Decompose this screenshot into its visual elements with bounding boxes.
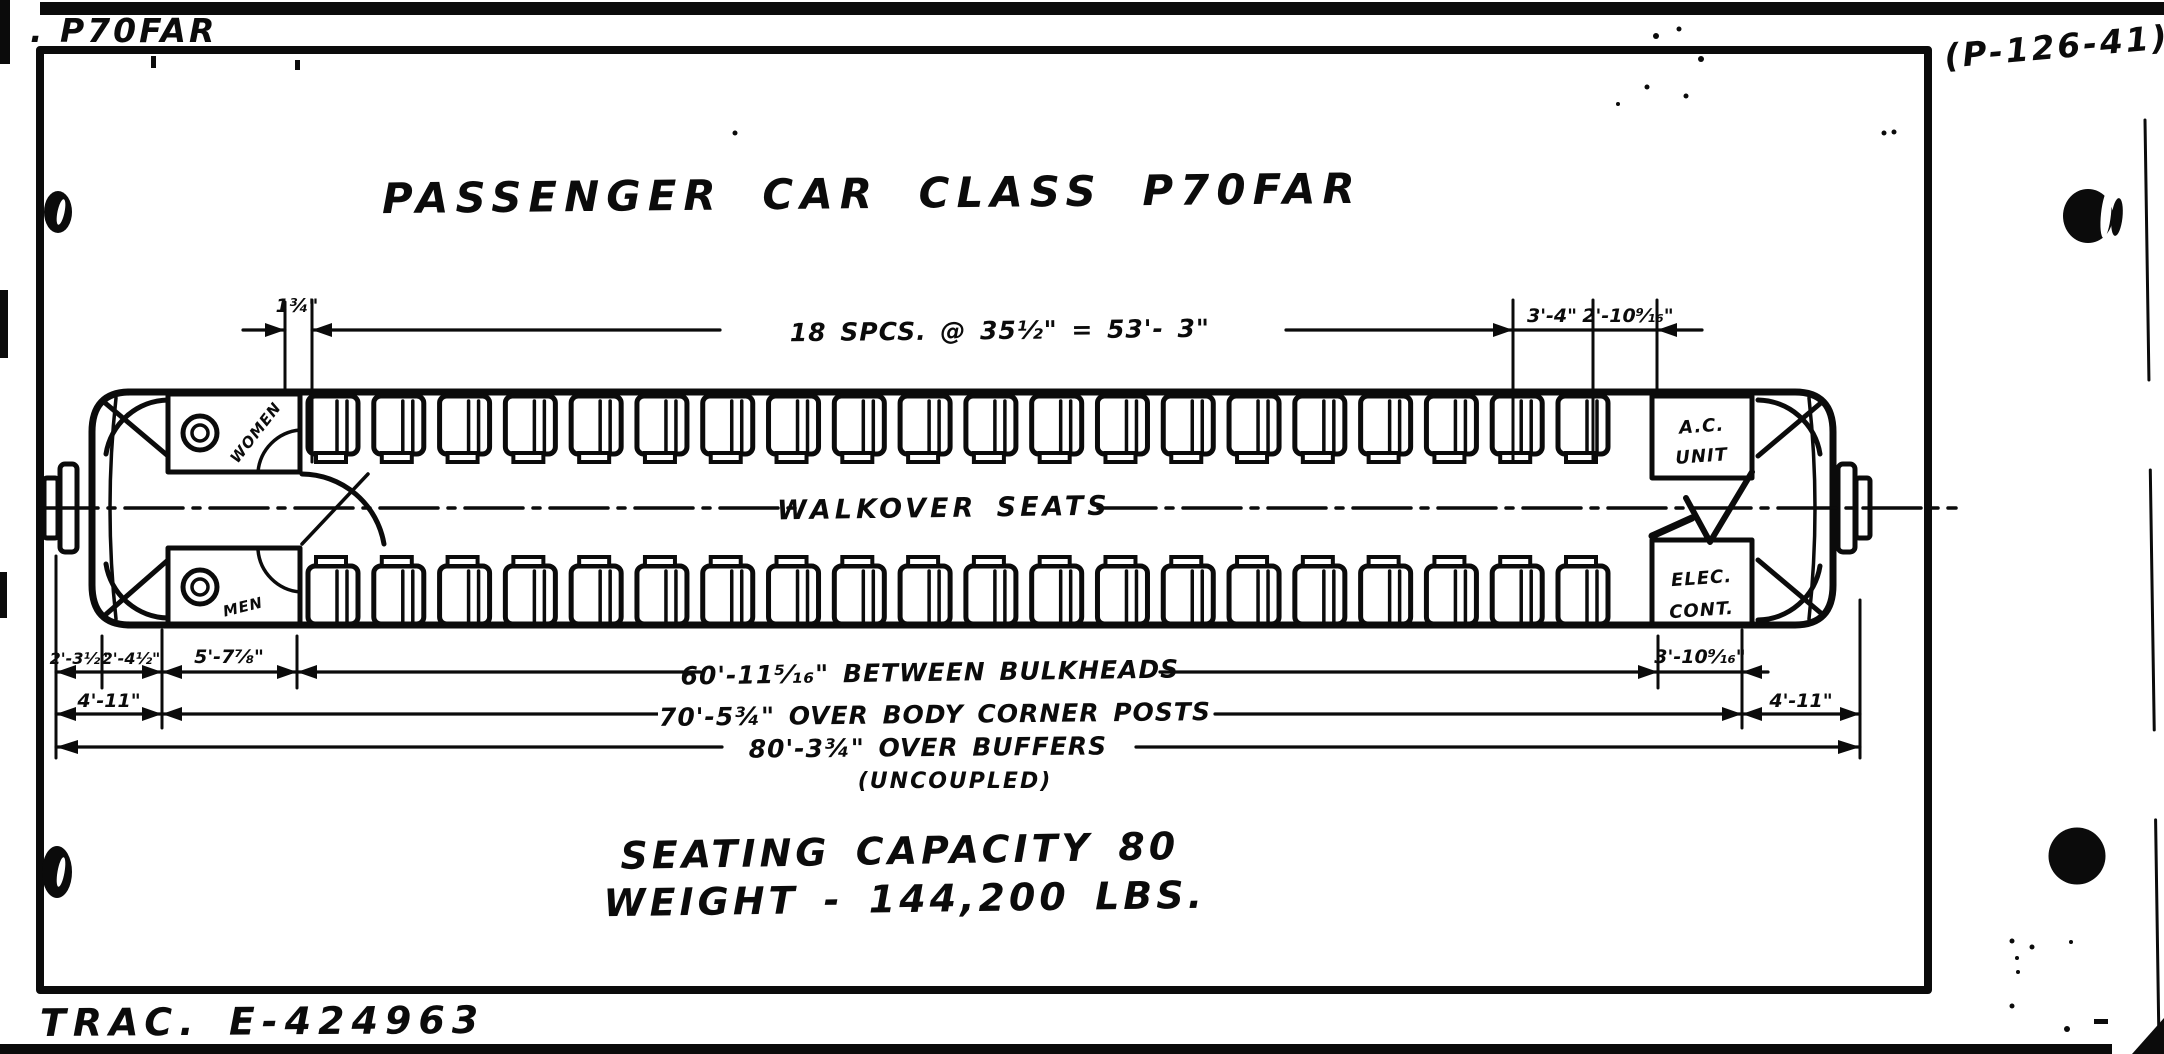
seat-top-row xyxy=(374,396,424,462)
seat-bottom-row xyxy=(1163,557,1213,624)
seat-top-row xyxy=(571,396,621,462)
dim-bottom-left-b: 2'-4½" xyxy=(102,649,161,668)
seat-top-row xyxy=(966,396,1016,462)
scanned-drawing-sheet: WOMEN MEN A.C. UNIT ELEC. CONT. xyxy=(0,0,2164,1054)
seat-bottom-row xyxy=(1295,557,1345,624)
seat-bottom-row xyxy=(374,557,424,624)
dim-bottom-left-a: 2'-3½" xyxy=(50,649,109,668)
ac-unit-label-1: A.C. xyxy=(1676,414,1725,438)
punch-hole-right-bottom xyxy=(2049,828,2106,885)
seat-bottom-row xyxy=(637,557,687,624)
elec-cont-label-1: ELEC. xyxy=(1670,566,1732,591)
seat-bottom-row xyxy=(703,557,753,624)
seat-top-row xyxy=(703,396,753,462)
seat-top-row xyxy=(308,396,358,462)
seat-bottom-row xyxy=(1097,557,1147,624)
seat-top-row xyxy=(769,396,819,462)
seat-bottom-row xyxy=(571,557,621,624)
seat-bottom-row xyxy=(1361,557,1411,624)
punch-hole-left-top xyxy=(44,191,72,233)
seat-bottom-row xyxy=(834,557,884,624)
elec-cont-label-2: CONT. xyxy=(1669,598,1735,623)
seat-bottom-row xyxy=(1032,557,1082,624)
seat-top-row xyxy=(1032,396,1082,462)
dim-over-buffers: 80'-3¾" OVER BUFFERS xyxy=(749,731,1108,763)
punch-hole-left-bottom xyxy=(42,846,72,898)
seat-bottom-row xyxy=(308,557,358,624)
seat-bottom-row xyxy=(505,557,555,624)
seat-bottom-row xyxy=(1492,557,1542,624)
seat-top-row xyxy=(1229,396,1279,462)
dim-top-right-b: 2'-10⁹⁄₁₆" xyxy=(1582,305,1673,327)
seat-top-row xyxy=(900,396,950,462)
dim-over-corner-posts: 70'-5¾" OVER BODY CORNER POSTS xyxy=(659,697,1211,732)
weight-note: WEIGHT - 144,200 LBS. xyxy=(603,873,1206,925)
dim-seat-spacing: 18 SPCS. @ 35½" = 53'- 3" xyxy=(790,314,1210,347)
seat-top-row xyxy=(1558,396,1608,462)
tracing-number: TRAC. E-424963 xyxy=(40,998,486,1045)
dim-right-end: 4'-11" xyxy=(1768,690,1832,712)
seat-bottom-row xyxy=(769,557,819,624)
dim-left-end: 4'-11" xyxy=(76,690,140,712)
seat-bottom-row xyxy=(1558,557,1608,624)
dim-top-small-left: 1¾" xyxy=(276,295,319,317)
walkover-seats-label: WALKOVER SEATS xyxy=(777,491,1111,527)
dim-bottom-right-a: 3'-10⁹⁄₁₆" xyxy=(1654,646,1745,668)
seat-bottom-row xyxy=(440,557,490,624)
seat-top-row xyxy=(505,396,555,462)
seat-bottom-row xyxy=(1229,557,1279,624)
dim-bottom-left-c: 5'-7⅞" xyxy=(194,646,264,668)
ac-unit-label-2: UNIT xyxy=(1675,444,1730,469)
seat-top-row xyxy=(637,396,687,462)
seat-top-row xyxy=(1097,396,1147,462)
drawing-canvas: WOMEN MEN A.C. UNIT ELEC. CONT. xyxy=(0,0,2164,1054)
dim-uncoupled-note: (UNCOUPLED) xyxy=(858,769,1053,794)
seat-top-row xyxy=(1361,396,1411,462)
seat-top-row xyxy=(440,396,490,462)
seat-top-row xyxy=(1492,396,1542,462)
seat-bottom-row xyxy=(966,557,1016,624)
page-title: PASSENGER CAR CLASS P70FAR xyxy=(382,164,1362,223)
seat-top-row xyxy=(1426,396,1476,462)
seat-top-row xyxy=(1295,396,1345,462)
seat-top-row xyxy=(1163,396,1213,462)
seat-bottom-row xyxy=(1426,557,1476,624)
seat-top-row xyxy=(834,396,884,462)
class-label: . P70FAR xyxy=(30,11,217,50)
dim-top-right-a: 3'-4" xyxy=(1527,305,1577,327)
seat-bottom-row xyxy=(900,557,950,624)
